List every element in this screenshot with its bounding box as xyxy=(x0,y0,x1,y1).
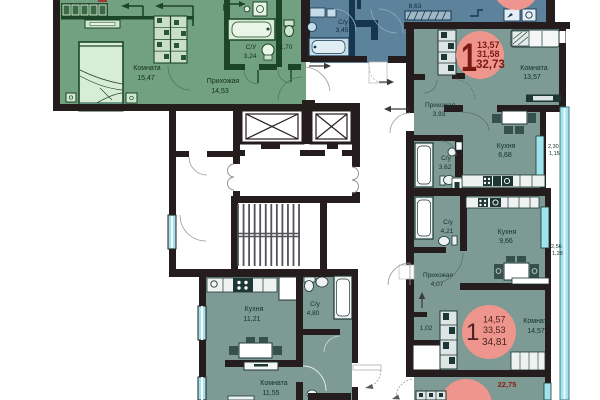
svg-text:1,70: 1,70 xyxy=(280,44,293,51)
svg-text:3,45: 3,45 xyxy=(336,27,349,34)
svg-text:1,28: 1,28 xyxy=(552,251,563,257)
svg-text:4,21: 4,21 xyxy=(441,228,454,235)
svg-text:С/У: С/У xyxy=(246,44,258,51)
svg-text:1: 1 xyxy=(466,319,479,346)
svg-text:3,24: 3,24 xyxy=(244,53,257,60)
svg-text:Кухня: Кухня xyxy=(497,143,516,150)
svg-text:11,55: 11,55 xyxy=(263,390,280,397)
svg-text:Комната: Комната xyxy=(523,318,551,325)
svg-text:9,66: 9,66 xyxy=(499,238,513,245)
svg-text:14,53: 14,53 xyxy=(211,88,229,95)
svg-text:1: 1 xyxy=(461,35,477,80)
svg-text:32,73: 32,73 xyxy=(476,59,505,71)
svg-text:С/у: С/у xyxy=(338,19,349,26)
svg-text:15,47: 15,47 xyxy=(137,75,155,82)
svg-text:4,80: 4,80 xyxy=(307,310,320,317)
svg-text:22,75: 22,75 xyxy=(498,380,517,389)
svg-text:13,57: 13,57 xyxy=(523,74,541,81)
svg-text:2,56: 2,56 xyxy=(551,244,562,250)
svg-text:1,02: 1,02 xyxy=(420,325,433,332)
svg-text:14,57: 14,57 xyxy=(527,328,545,335)
svg-text:Прихожая: Прихожая xyxy=(207,78,240,85)
svg-text:Комната: Комната xyxy=(520,65,548,72)
svg-text:33,53: 33,53 xyxy=(483,325,506,335)
svg-text:С/у: С/у xyxy=(310,301,321,308)
svg-text:31,58: 31,58 xyxy=(477,49,500,59)
svg-text:Прихожая: Прихожая xyxy=(425,102,456,109)
svg-text:Кухня: Кухня xyxy=(245,306,264,313)
svg-text:14,57: 14,57 xyxy=(483,315,506,325)
svg-text:Комната: Комната xyxy=(133,65,161,72)
svg-text:3,93: 3,93 xyxy=(433,111,446,118)
svg-text:3,62: 3,62 xyxy=(439,164,452,171)
svg-text:Комната: Комната xyxy=(260,380,288,387)
svg-text:1,15: 1,15 xyxy=(549,151,560,157)
svg-text:11,21: 11,21 xyxy=(244,316,261,323)
svg-text:34,81: 34,81 xyxy=(482,337,507,348)
svg-text:С/у: С/у xyxy=(441,155,452,162)
svg-text:С/у: С/у xyxy=(443,219,454,226)
svg-text:Прихожая: Прихожая xyxy=(423,272,454,279)
svg-text:Кухня: Кухня xyxy=(498,229,517,236)
svg-text:8,63: 8,63 xyxy=(409,3,422,10)
svg-text:6,68: 6,68 xyxy=(498,152,512,159)
svg-text:2,30: 2,30 xyxy=(548,144,559,150)
